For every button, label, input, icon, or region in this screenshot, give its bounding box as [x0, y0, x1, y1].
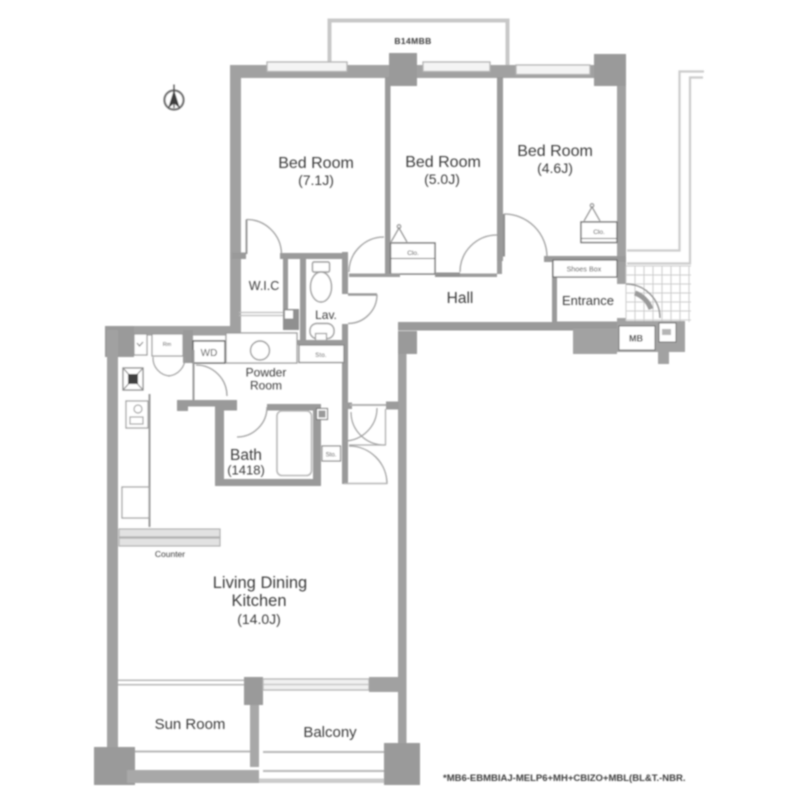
svg-text:B14MBB: B14MBB: [394, 36, 431, 46]
svg-text:Lav.: Lav.: [315, 308, 337, 322]
svg-text:Counter: Counter: [155, 549, 185, 559]
svg-text:Entrance: Entrance: [562, 293, 614, 308]
svg-text:Clo.: Clo.: [593, 229, 605, 236]
svg-text:W.I.C: W.I.C: [249, 279, 280, 293]
svg-text:Clo.: Clo.: [407, 250, 419, 257]
svg-text:Bed Room: Bed Room: [278, 155, 354, 172]
svg-text:Bath: Bath: [230, 447, 262, 464]
svg-text:Sto.: Sto.: [315, 353, 327, 359]
svg-text:Sto.: Sto.: [326, 453, 337, 459]
svg-text:Living Dining: Living Dining: [213, 574, 307, 592]
svg-text:(4.6J): (4.6J): [537, 160, 573, 176]
svg-text:Sun Room: Sun Room: [155, 716, 226, 733]
svg-text:Bed Room: Bed Room: [405, 154, 481, 171]
svg-text:Balcony: Balcony: [303, 724, 357, 741]
svg-text:(7.1J): (7.1J): [298, 172, 334, 188]
svg-text:Room: Room: [250, 379, 282, 393]
svg-text:Shoes Box: Shoes Box: [567, 267, 602, 274]
svg-text:Bed Room: Bed Room: [517, 143, 593, 160]
svg-text:MB: MB: [629, 334, 643, 344]
svg-text:(1418): (1418): [227, 463, 265, 478]
svg-text:Kitchen: Kitchen: [231, 592, 286, 610]
svg-text:(14.0J): (14.0J): [237, 611, 281, 627]
svg-text:Hall: Hall: [447, 290, 474, 307]
svg-text:*MB6-EBMBIAJ-MELP6+MH+CBIZO+MB: *MB6-EBMBIAJ-MELP6+MH+CBIZO+MBL(BL&T.-NB…: [443, 773, 686, 784]
svg-text:Rm: Rm: [163, 342, 172, 348]
svg-text:(5.0J): (5.0J): [424, 171, 460, 187]
svg-text:Powder: Powder: [246, 366, 287, 380]
svg-text:WD: WD: [201, 348, 218, 359]
